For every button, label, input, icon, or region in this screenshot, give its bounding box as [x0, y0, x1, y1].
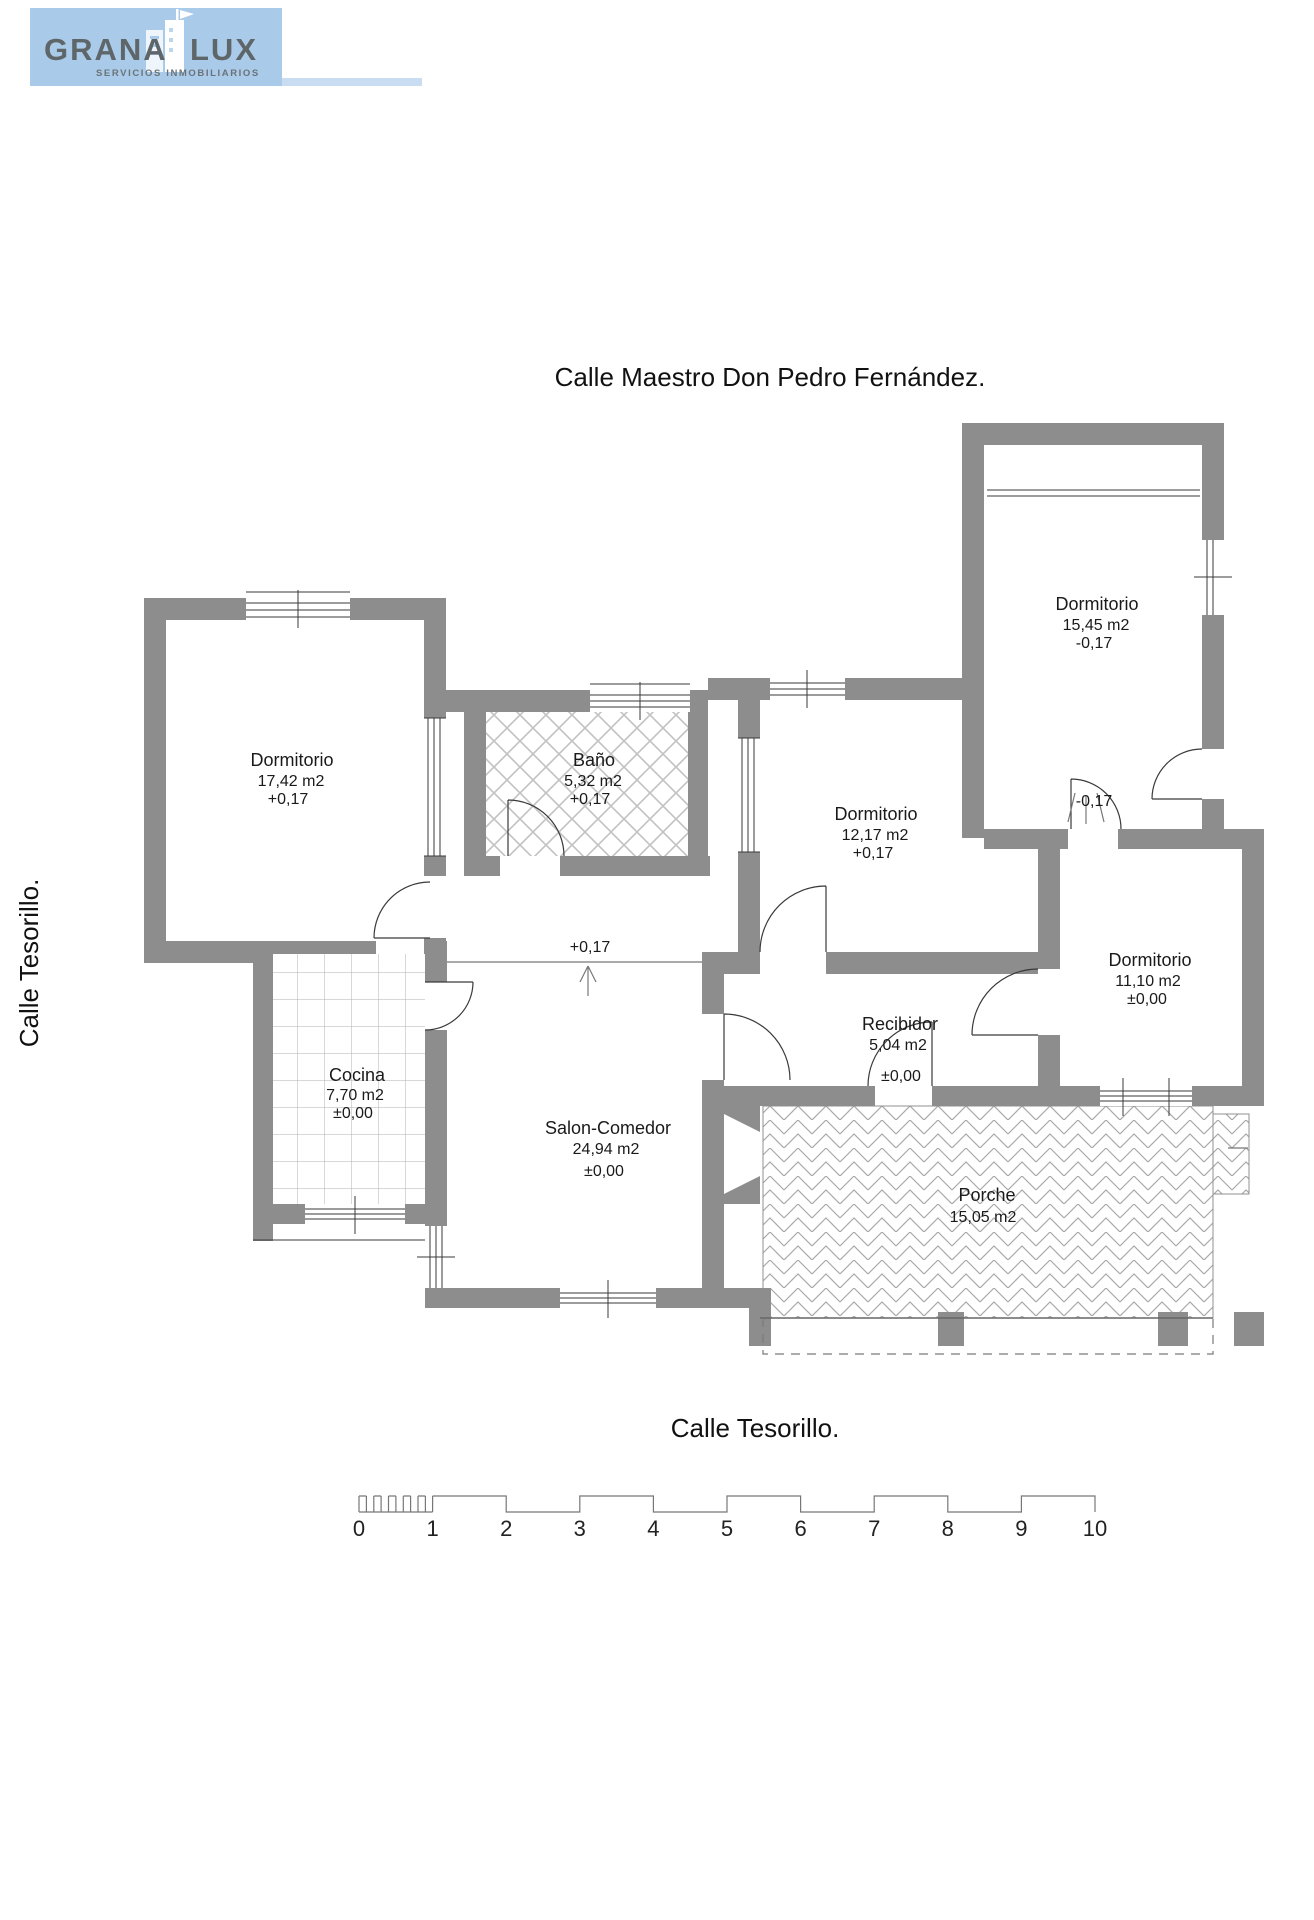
room-name: Salon-Comedor: [545, 1118, 671, 1138]
room-level: +0,17: [268, 791, 309, 808]
window-salon-left: [417, 1226, 455, 1288]
scale-tick: 4: [647, 1516, 659, 1541]
street-label-top: Calle Maestro Don Pedro Fernández.: [555, 362, 986, 392]
step-level-label: -0,17: [1076, 793, 1113, 810]
room-area: 17,42 m2: [258, 773, 325, 790]
window-band-dormitorio-1742-right: [424, 718, 446, 856]
label-dormitorio-1742: Dormitorio 17,42 m2 +0,17: [250, 750, 333, 808]
scale-tick: 5: [721, 1516, 733, 1541]
window-band-dormitorio-1217-left: [738, 738, 760, 852]
scale-bar: 0 1 2 3 4 5 6 7 8 9 10: [353, 1496, 1107, 1541]
window-dormitorio-1217-top: [770, 670, 845, 708]
door-dormitorio-1110: [972, 969, 1038, 1035]
room-level: ±0,00: [1127, 991, 1167, 1008]
scale-tick: 10: [1083, 1516, 1107, 1541]
room-name: Cocina: [329, 1065, 386, 1085]
scale-tick: 8: [942, 1516, 954, 1541]
room-area: 7,70 m2: [326, 1087, 384, 1104]
hall-level-label: +0,17: [570, 939, 611, 956]
scale-tick: 7: [868, 1516, 880, 1541]
room-level: ±0,00: [333, 1105, 373, 1122]
label-dormitorio-1217: Dormitorio 12,17 m2 +0,17: [834, 804, 917, 862]
door-dormitorio-1545: [1152, 749, 1202, 799]
scale-tick: 2: [500, 1516, 512, 1541]
label-dormitorio-1110: Dormitorio 11,10 m2 ±0,00: [1108, 950, 1191, 1008]
logo-text-lux: LUX: [190, 32, 258, 67]
room-name: Recibidor: [862, 1014, 938, 1034]
door-dormitorio-1742: [374, 882, 430, 938]
scale-tick: 0: [353, 1516, 365, 1541]
scale-tick: 6: [794, 1516, 806, 1541]
room-name: Dormitorio: [1055, 594, 1138, 614]
street-label-left: Calle Tesorillo.: [14, 879, 44, 1048]
scale-bar-wave: [433, 1496, 1095, 1512]
room-level: +0,17: [853, 845, 894, 862]
label-dormitorio-1545: Dormitorio 15,45 m2 -0,17: [1055, 594, 1138, 652]
label-salon: Salon-Comedor 24,94 m2 ±0,00: [545, 1118, 671, 1180]
room-area: 15,45 m2: [1063, 617, 1130, 634]
street-label-bottom: Calle Tesorillo.: [671, 1413, 840, 1443]
window-dormitorio-1742-top: [246, 590, 350, 628]
scale-tick: 9: [1015, 1516, 1027, 1541]
room-name: Dormitorio: [250, 750, 333, 770]
scale-tick: 3: [574, 1516, 586, 1541]
door-dormitorio-1217: [760, 886, 826, 952]
floor-plan-canvas: GRANA LUX SERVICIOS INMOBILIARIOS Calle …: [0, 0, 1314, 1920]
room-area: 24,94 m2: [573, 1141, 640, 1158]
room-area: 12,17 m2: [842, 827, 909, 844]
scale-tick: 1: [426, 1516, 438, 1541]
logo-text-grana: GRANA: [44, 32, 168, 67]
room-name: Dormitorio: [1108, 950, 1191, 970]
room-level: -0,17: [1076, 635, 1113, 652]
porche-dashed-outline: [763, 1318, 1213, 1354]
room-name: Baño: [573, 750, 615, 770]
room-name: Porche: [958, 1185, 1015, 1205]
room-name: Dormitorio: [834, 804, 917, 824]
scale-bar-numbers: 0 1 2 3 4 5 6 7 8 9 10: [353, 1516, 1107, 1541]
floor-plan-page: GRANA LUX SERVICIOS INMOBILIARIOS Calle …: [0, 0, 1314, 1920]
logo-shadow-strip: [282, 78, 422, 86]
room-area: 11,10 m2: [1115, 973, 1181, 990]
logo-tagline: SERVICIOS INMOBILIARIOS: [96, 68, 260, 79]
room-area: 5,04 m2: [869, 1037, 927, 1054]
window-salon-bottom: [560, 1280, 656, 1318]
room-area: 15,05 m2: [950, 1209, 1017, 1226]
logo: GRANA LUX SERVICIOS INMOBILIARIOS: [30, 8, 422, 86]
closet-line-dormitorio-1545: [987, 490, 1200, 496]
room-level: ±0,00: [584, 1163, 624, 1180]
room-level: +0,17: [570, 791, 611, 808]
hall-step-arrow: [580, 966, 596, 996]
room-area: 5,32 m2: [564, 773, 622, 790]
door-cocina: [425, 982, 473, 1030]
door-recibidor-hall: [724, 1014, 790, 1080]
porche-side-step-hatch: [1213, 1114, 1249, 1194]
room-level: ±0,00: [881, 1068, 921, 1085]
scale-bar-comb: [359, 1496, 433, 1512]
window-dormitorio-1545-right: [1194, 540, 1232, 615]
label-recibidor: Recibidor 5,04 m2 ±0,00: [862, 1014, 938, 1085]
